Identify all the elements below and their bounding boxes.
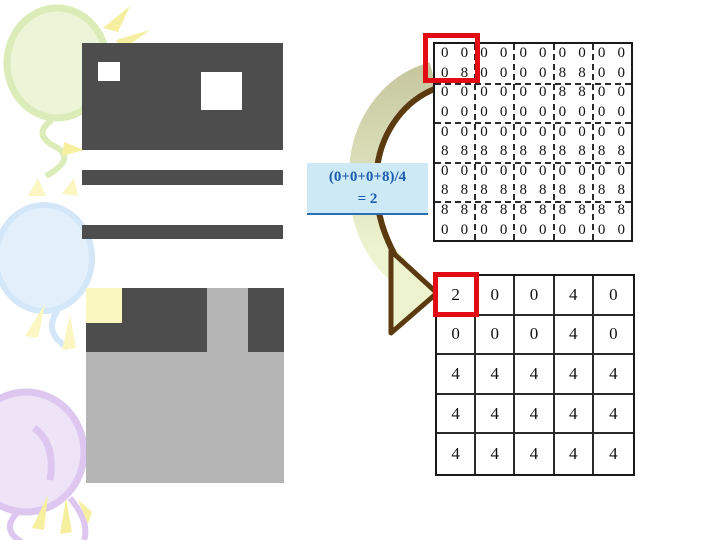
matrix-cell: 8	[533, 142, 553, 162]
sparkle-icon	[28, 178, 46, 196]
matrix-cell: 0	[594, 276, 633, 316]
matrix-cell: 0	[592, 162, 612, 182]
matrix-cell: 0	[611, 220, 631, 240]
matrix-cell: 0	[611, 103, 631, 123]
matrix-cell: 0	[553, 103, 573, 123]
matrix-cell: 4	[555, 355, 594, 395]
matrix-cell: 0	[435, 220, 455, 240]
sparkle-icon	[62, 315, 76, 350]
downsampled-image	[86, 288, 284, 483]
matrix-cell: 0	[513, 162, 533, 182]
matrix-cell: 8	[572, 64, 592, 84]
matrix-cell: 4	[594, 395, 633, 435]
matrix-cell: 0	[553, 162, 573, 182]
matrix-cell: 4	[515, 434, 554, 474]
white-square-large	[201, 72, 242, 110]
matrix-cell: 8	[611, 181, 631, 201]
block-separator	[435, 122, 631, 124]
matrix-cell: 8	[572, 201, 592, 221]
matrix-cell: 0	[572, 103, 592, 123]
matrix-cell: 8	[474, 201, 494, 221]
matrix-cell: 8	[553, 83, 573, 103]
downsampled-yellow-block	[86, 288, 122, 323]
matrix-cell: 0	[515, 276, 554, 316]
block-separator	[435, 162, 631, 164]
original-image	[82, 43, 283, 150]
matrix-cell: 8	[474, 181, 494, 201]
matrix-cell: 0	[435, 162, 455, 182]
matrix-cell: 0	[476, 316, 515, 356]
matrix-cell: 0	[533, 122, 553, 142]
matrix-cell: 0	[494, 83, 514, 103]
matrix-cell: 0	[611, 64, 631, 84]
matrix-cell: 8	[592, 142, 612, 162]
formula-box: (0+0+0+8)/4 = 2	[307, 163, 428, 215]
matrix-cell: 0	[533, 162, 553, 182]
matrix-cell: 0	[476, 276, 515, 316]
matrix-cell: 4	[555, 434, 594, 474]
matrix-cell: 8	[435, 181, 455, 201]
matrix-cell: 8	[455, 142, 475, 162]
matrix-cell: 4	[437, 395, 476, 435]
matrix-cell: 4	[594, 355, 633, 395]
matrix-cell: 8	[592, 201, 612, 221]
block-separator	[553, 44, 555, 240]
matrix-cell: 0	[474, 162, 494, 182]
matrix-cell: 4	[594, 434, 633, 474]
matrix-cell: 8	[611, 142, 631, 162]
sparkle-icon	[103, 6, 130, 32]
gray-bar-bottom	[82, 225, 283, 239]
slide-canvas: (0+0+0+8)/4 = 2 000000000008000088000000…	[0, 0, 720, 540]
matrix-cell: 8	[553, 201, 573, 221]
matrix-cell: 0	[513, 83, 533, 103]
matrix-cell: 4	[555, 276, 594, 316]
matrix-cell: 0	[494, 64, 514, 84]
matrix-cell: 0	[435, 83, 455, 103]
formula-line-1: (0+0+0+8)/4	[307, 166, 428, 188]
matrix-cell: 0	[533, 44, 553, 64]
matrix-cell: 0	[553, 44, 573, 64]
source-matrix-highlight	[423, 33, 480, 83]
matrix-cell: 0	[513, 64, 533, 84]
matrix-cell: 0	[494, 103, 514, 123]
matrix-cell: 8	[513, 142, 533, 162]
matrix-cell: 0	[592, 220, 612, 240]
matrix-cell: 4	[515, 355, 554, 395]
matrix-cell: 8	[611, 201, 631, 221]
gray-bar-top	[82, 170, 283, 185]
matrix-cell: 0	[553, 220, 573, 240]
block-separator	[435, 201, 631, 203]
matrix-cell: 0	[437, 316, 476, 356]
block-separator	[592, 44, 594, 240]
matrix-cell: 0	[513, 103, 533, 123]
matrix-cell: 0	[474, 220, 494, 240]
matrix-cell: 8	[513, 181, 533, 201]
matrix-cell: 0	[611, 162, 631, 182]
matrix-cell: 0	[553, 122, 573, 142]
matrix-cell: 8	[572, 142, 592, 162]
block-separator	[435, 83, 631, 85]
matrix-cell: 8	[572, 83, 592, 103]
matrix-cell: 8	[553, 64, 573, 84]
sparkle-icon	[62, 178, 78, 196]
matrix-cell: 0	[455, 83, 475, 103]
matrix-cell: 4	[476, 434, 515, 474]
matrix-cell: 8	[572, 181, 592, 201]
block-separator	[513, 44, 515, 240]
matrix-cell: 0	[533, 64, 553, 84]
matrix-cell: 4	[555, 395, 594, 435]
matrix-cell: 8	[592, 181, 612, 201]
matrix-cell: 0	[474, 122, 494, 142]
matrix-cell: 8	[553, 142, 573, 162]
matrix-cell: 0	[611, 122, 631, 142]
matrix-cell: 4	[515, 395, 554, 435]
matrix-cell: 8	[455, 181, 475, 201]
matrix-cell: 8	[494, 201, 514, 221]
matrix-cell: 0	[611, 44, 631, 64]
matrix-cell: 0	[592, 83, 612, 103]
purple-balloon	[0, 392, 92, 540]
matrix-cell: 0	[435, 103, 455, 123]
matrix-cell: 4	[437, 355, 476, 395]
matrix-cell: 0	[494, 122, 514, 142]
white-square-small	[98, 62, 120, 81]
matrix-cell: 4	[476, 355, 515, 395]
sparkle-icon	[62, 142, 84, 156]
matrix-cell: 0	[455, 220, 475, 240]
matrix-cell: 0	[572, 122, 592, 142]
matrix-cell: 0	[513, 122, 533, 142]
matrix-cell: 0	[494, 44, 514, 64]
matrix-cell: 8	[474, 142, 494, 162]
matrix-cell: 8	[553, 181, 573, 201]
matrix-cell: 0	[533, 103, 553, 123]
result-matrix-highlight	[433, 272, 479, 317]
matrix-cell: 8	[435, 201, 455, 221]
matrix-cell: 8	[533, 181, 553, 201]
downsampled-dark-right	[248, 288, 284, 352]
matrix-cell: 0	[592, 44, 612, 64]
matrix-cell: 8	[533, 201, 553, 221]
matrix-cell: 0	[494, 220, 514, 240]
matrix-cell: 0	[594, 316, 633, 356]
matrix-cell: 0	[572, 44, 592, 64]
matrix-cell: 0	[572, 162, 592, 182]
matrix-cell: 0	[513, 44, 533, 64]
arrow-head	[391, 251, 437, 333]
matrix-cell: 0	[455, 162, 475, 182]
matrix-cell: 0	[435, 122, 455, 142]
formula-line-2: = 2	[307, 188, 428, 210]
matrix-cell: 0	[533, 220, 553, 240]
matrix-cell: 0	[494, 162, 514, 182]
matrix-cell: 4	[555, 316, 594, 356]
matrix-cell: 8	[513, 201, 533, 221]
matrix-cell: 8	[494, 181, 514, 201]
matrix-cell: 0	[474, 83, 494, 103]
matrix-cell: 0	[515, 316, 554, 356]
matrix-cell: 0	[592, 64, 612, 84]
matrix-cell: 0	[592, 122, 612, 142]
matrix-cell: 0	[533, 83, 553, 103]
matrix-cell: 8	[455, 201, 475, 221]
matrix-cell: 8	[435, 142, 455, 162]
matrix-cell: 0	[455, 122, 475, 142]
matrix-cell: 4	[476, 395, 515, 435]
matrix-cell: 0	[474, 103, 494, 123]
matrix-cell: 0	[611, 83, 631, 103]
matrix-cell: 8	[494, 142, 514, 162]
matrix-cell: 0	[513, 220, 533, 240]
matrix-cell: 0	[455, 103, 475, 123]
matrix-cell: 4	[437, 434, 476, 474]
matrix-cell: 0	[572, 220, 592, 240]
matrix-cell: 0	[592, 103, 612, 123]
